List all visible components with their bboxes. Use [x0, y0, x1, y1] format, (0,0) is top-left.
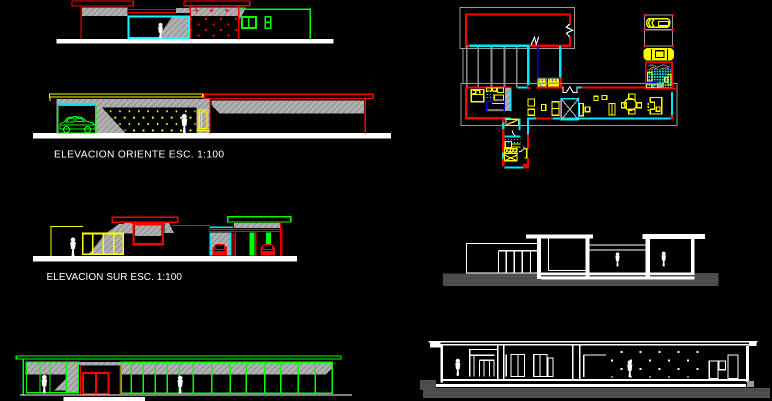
svg-text:ELEVACION SUR ESC. 1:100: ELEVACION SUR ESC. 1:100: [47, 272, 183, 283]
svg-text:ELEVACION ORIENTE ESC. 1:100: ELEVACION ORIENTE ESC. 1:100: [54, 150, 224, 161]
